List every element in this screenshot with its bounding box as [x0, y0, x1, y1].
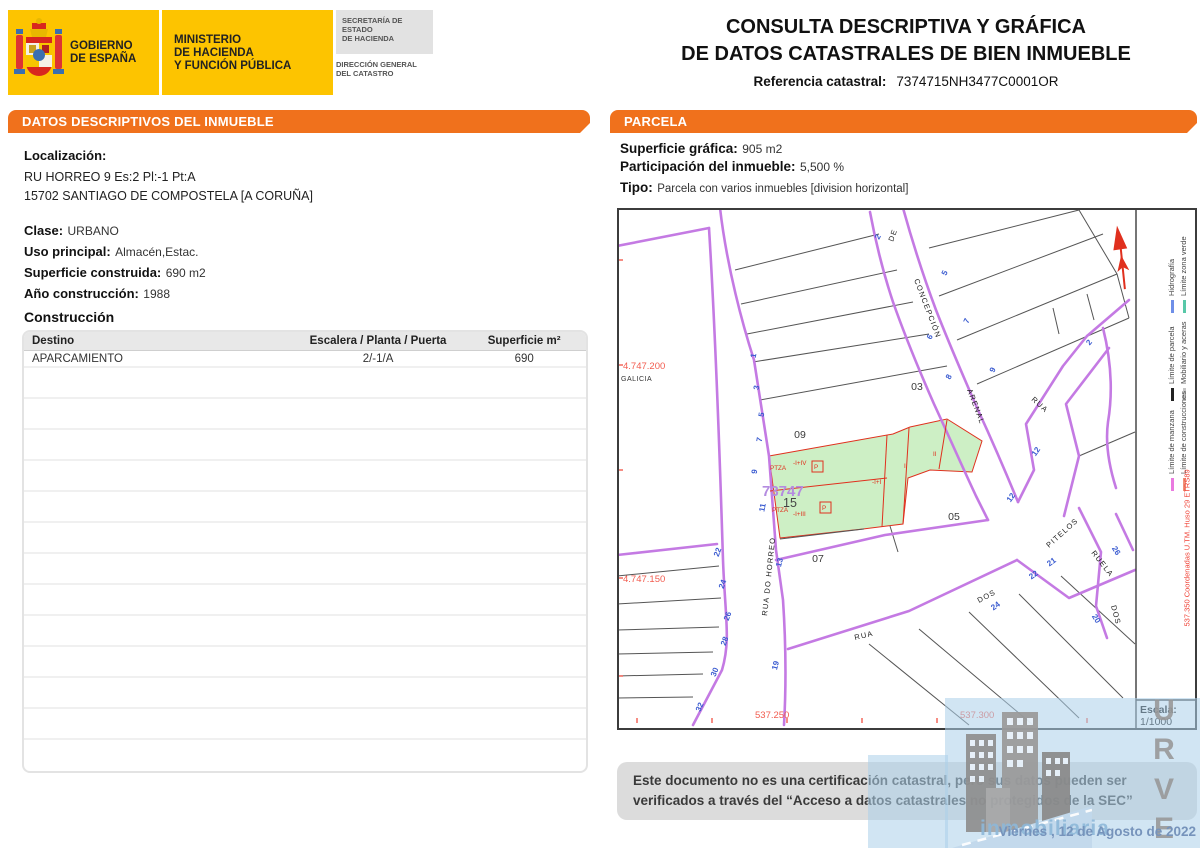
cadastral-reference: Referencia catastral:7374715NH3477C0001O…: [615, 74, 1197, 89]
house-number-label: 28: [719, 635, 731, 647]
participacion-label: Participación del inmueble:: [620, 159, 796, 174]
table-row-empty: [24, 368, 586, 399]
cell-destino: APARCAMIENTO: [24, 351, 294, 366]
house-number-label: 11: [757, 502, 767, 512]
construction-label: -I+III: [793, 511, 806, 518]
superficie-grafica-value: 905 m2: [742, 142, 782, 156]
scale-box: Escala: 1/1000: [1140, 704, 1177, 728]
table-row-empty: [24, 430, 586, 461]
superficie-grafica-label: Superficie gráfica:: [620, 141, 738, 156]
house-number-label: 9: [750, 468, 760, 474]
localizacion-label: Localización:: [24, 148, 106, 163]
house-number-label: 7: [962, 316, 972, 324]
address-line2: 15702 SANTIAGO DE COMPOSTELA [A CORUÑA]: [24, 189, 313, 203]
legend-hidrografia: Hidrografía: [1167, 259, 1176, 296]
construction-label: -I+IV: [793, 460, 807, 467]
table-row-empty: [24, 399, 586, 430]
document-title-line2: DE DATOS CATASTRALES DE BIEN INMUEBLE: [615, 41, 1197, 68]
direccion-catastro-label: DIRECCIÓN GENERAL DEL CATASTRO: [336, 60, 433, 78]
legend-group-parcela: Límite de parcela Mobiliario y aceras: [1166, 305, 1190, 401]
legend-limite-parcela: Límite de parcela: [1167, 326, 1176, 384]
secretaria-label: SECRETARÍA DE ESTADO DE HACIENDA: [336, 10, 433, 54]
house-number-label: 8: [944, 372, 954, 381]
cell-superficie: 690: [462, 351, 586, 366]
tipo-row: Tipo: Parcela con varios inmuebles [divi…: [620, 179, 908, 197]
ministerio-label: MINISTERIO DE HACIENDA Y FUNCIÓN PÚBLICA: [174, 34, 291, 73]
house-number-label: 19: [770, 659, 781, 670]
house-number-label: 9: [988, 365, 998, 373]
table-row-empty: [24, 523, 586, 554]
construction-table-header: Destino Escalera / Planta / Puerta Super…: [24, 332, 586, 351]
col-header-superficie: Superficie m²: [462, 332, 586, 350]
uso-value: Almacén,Estac.: [115, 245, 198, 259]
street-name-label: PITELOS: [1044, 516, 1080, 550]
construccion-title: Construcción: [24, 309, 114, 325]
tipo-label: Tipo:: [620, 180, 653, 195]
table-row-empty: [24, 709, 586, 740]
cadastral-reference-value: 7374715NH3477C0001OR: [896, 74, 1058, 89]
coordinate-label: 537.300: [960, 710, 994, 721]
spain-coat-of-arms-icon: [12, 17, 66, 89]
north-arrow-icon: [1110, 225, 1133, 290]
address-line1: RU HORREO 9 Es:2 Pl:-1 Pt:A: [24, 170, 196, 184]
table-row-empty: [24, 616, 586, 647]
parcel-number-label: 03: [911, 381, 923, 393]
table-row-empty: [24, 461, 586, 492]
table-row-empty: [24, 647, 586, 678]
coordinate-label: 4.747.200: [623, 361, 665, 372]
scale-label: Escala:: [1140, 704, 1177, 716]
parcel-number-label: 05: [948, 511, 960, 523]
disclaimer-box: Este documento no es una certificación c…: [617, 762, 1197, 820]
clase-row: Clase: URBANO: [24, 222, 119, 240]
cadastral-map-svg: 4.747.2004.747.150537.250537.300 GALICIA…: [617, 208, 1197, 730]
scale-value: 1/1000: [1140, 716, 1177, 728]
superficie-row: Superficie construida: 690 m2: [24, 264, 206, 282]
section-header-parcela: PARCELA: [610, 110, 1197, 133]
superficie-value: 690 m2: [166, 266, 206, 280]
table-row-empty: [24, 492, 586, 523]
construction-label: II: [933, 451, 937, 458]
street-name-label: RUA DO HORREO: [760, 536, 777, 616]
parcel-number-label: 07: [812, 553, 824, 565]
table-row-empty: [24, 740, 586, 771]
legend-mobiliario: Mobiliario y aceras: [1179, 321, 1188, 384]
legend-limite-construcciones: Límite de construcciones: [1179, 391, 1188, 474]
cell-escalera: 2/-1/A: [294, 351, 463, 366]
house-number-label: 24: [989, 599, 1002, 612]
section-header-datos-descriptivos: DATOS DESCRIPTIVOS DEL INMUEBLE: [8, 110, 590, 133]
house-number-label: 26: [722, 610, 734, 622]
clase-label: Clase:: [24, 223, 63, 238]
map-region-labels: GALICIA: [621, 376, 652, 383]
gobierno-logo-block: GOBIERNO DE ESPAÑA: [8, 10, 159, 95]
street-name-label: ARENAL: [965, 387, 987, 425]
document-title-line1: CONSULTA DESCRIPTIVA Y GRÁFICA: [615, 14, 1197, 41]
construction-table: Destino Escalera / Planta / Puerta Super…: [22, 330, 588, 773]
construction-label: I: [904, 463, 906, 470]
coordinate-label: 4.747.150: [623, 574, 665, 585]
table-row-empty: [24, 554, 586, 585]
legend-group-hydro: Hidrografía Límite zona verde: [1166, 217, 1190, 313]
uso-label: Uso principal:: [24, 244, 111, 259]
col-header-escalera: Escalera / Planta / Puerta: [294, 332, 463, 350]
col-header-destino: Destino: [24, 332, 294, 350]
limite-manzana-swatch: [1171, 478, 1174, 491]
table-row: APARCAMIENTO 2/-1/A 690: [24, 351, 586, 368]
document-date: Viernes , 12 de Agosto de 2022: [999, 824, 1196, 839]
gobierno-label: GOBIERNO DE ESPAÑA: [70, 40, 136, 66]
house-number-label: 26: [1110, 545, 1123, 558]
construction-label: -I+I: [872, 479, 882, 486]
uso-row: Uso principal: Almacén,Estac.: [24, 243, 199, 261]
construction-table-empty-rows: [24, 368, 586, 771]
cadastral-reference-label: Referencia catastral:: [754, 74, 887, 89]
parcel-15-label: 15: [783, 496, 797, 510]
house-number-label: 24: [717, 578, 729, 590]
house-number-label: 3: [752, 384, 762, 390]
anio-row: Año construcción: 1988: [24, 285, 170, 303]
table-row-empty: [24, 585, 586, 616]
participacion-row: Participación del inmueble: 5,500 %: [620, 158, 844, 176]
cadastral-map: 4.747.2004.747.150537.250537.300 GALICIA…: [617, 208, 1197, 730]
superficie-label: Superficie construida:: [24, 265, 161, 280]
construction-label: PTZA: [770, 465, 787, 472]
anio-label: Año construcción:: [24, 286, 139, 301]
house-number-label: 1: [749, 352, 759, 358]
parcel-number-label: 09: [794, 429, 806, 441]
ministerio-logo-block: MINISTERIO DE HACIENDA Y FUNCIÓN PÚBLICA: [162, 10, 333, 95]
tipo-value: Parcela con varios inmuebles [division h…: [657, 183, 908, 195]
legend-limite-manzana: Límite de manzana: [1167, 410, 1176, 474]
house-number-label: 2: [1084, 337, 1094, 347]
street-name-label: RUELA: [1089, 549, 1115, 579]
document-title-block: CONSULTA DESCRIPTIVA Y GRÁFICA DE DATOS …: [615, 14, 1197, 89]
house-number-label: 7: [755, 436, 765, 442]
house-number-label: 2: [873, 232, 883, 241]
region-label: GALICIA: [621, 376, 652, 383]
superficie-grafica-row: Superficie gráfica: 905 m2: [620, 140, 782, 158]
house-number-label: 5: [940, 268, 950, 276]
table-row-empty: [24, 678, 586, 709]
crs-note: 537.350 Coordenadas U.TM. Huso 29 ETRS89: [1183, 477, 1192, 627]
street-name-label: DE: [886, 228, 899, 243]
legend-zona-verde: Límite zona verde: [1179, 236, 1188, 296]
construction-label: P: [822, 505, 826, 512]
house-number-label: 21: [1045, 555, 1058, 568]
coordinate-label: 537.250: [755, 710, 789, 721]
anio-value: 1988: [143, 287, 170, 301]
construction-label: P: [814, 464, 818, 471]
participacion-value: 5,500 %: [800, 160, 844, 174]
street-name-label: RUA: [853, 629, 874, 642]
clase-value: URBANO: [67, 224, 118, 238]
